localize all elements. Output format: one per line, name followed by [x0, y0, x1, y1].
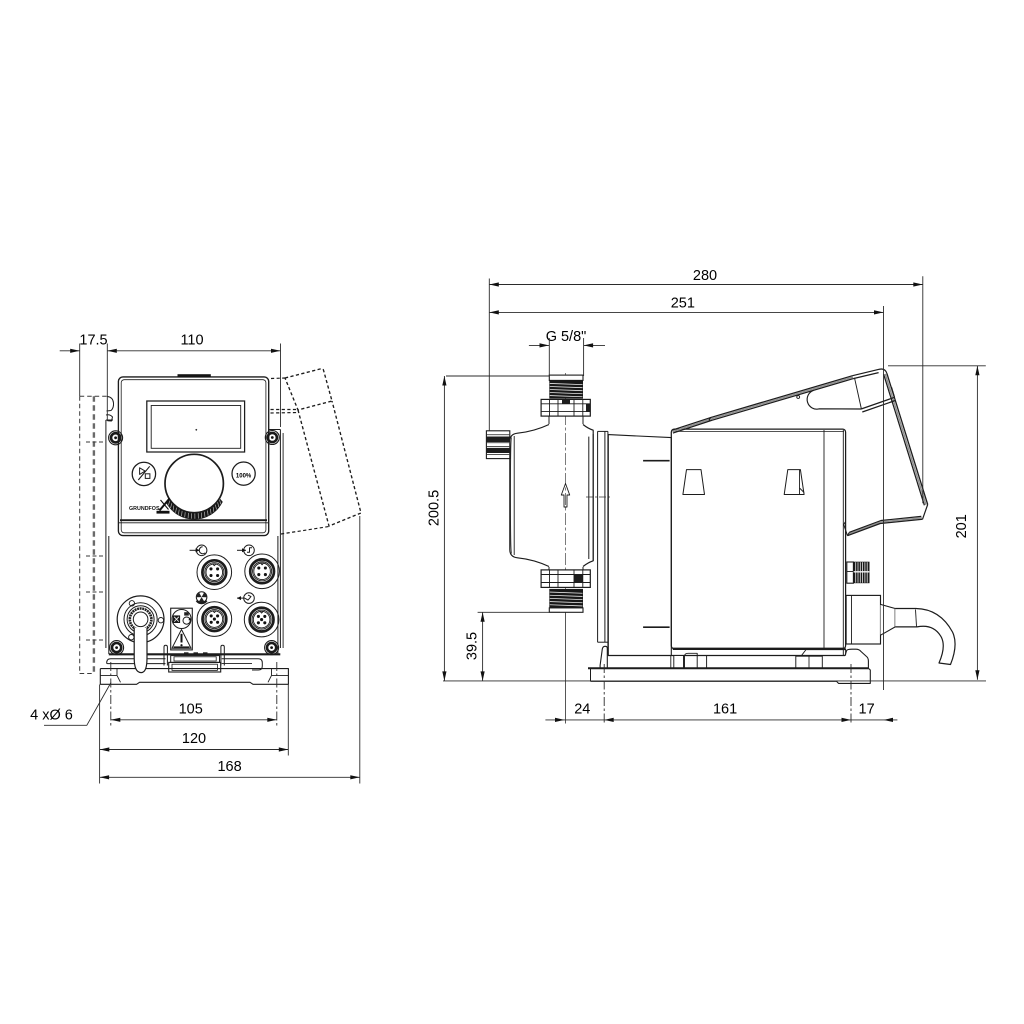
svg-text:251: 251	[671, 296, 695, 312]
svg-text:G 5/8": G 5/8"	[546, 329, 587, 345]
svg-text:280: 280	[693, 268, 717, 284]
svg-text:100%: 100%	[236, 473, 252, 479]
svg-text:120: 120	[182, 731, 206, 747]
svg-text:17: 17	[859, 702, 875, 718]
svg-text:39.5: 39.5	[465, 632, 481, 660]
svg-text:161: 161	[713, 702, 737, 718]
svg-text:201: 201	[954, 514, 970, 538]
svg-text:168: 168	[217, 759, 241, 775]
svg-text:110: 110	[180, 333, 203, 349]
svg-text:200.5: 200.5	[427, 490, 443, 526]
svg-text:4 xØ 6: 4 xØ 6	[30, 708, 73, 724]
svg-text:24: 24	[574, 702, 590, 718]
svg-text:GRUNDFOS: GRUNDFOS	[129, 506, 160, 512]
svg-text:105: 105	[179, 701, 203, 717]
svg-text:17.5: 17.5	[79, 333, 107, 349]
